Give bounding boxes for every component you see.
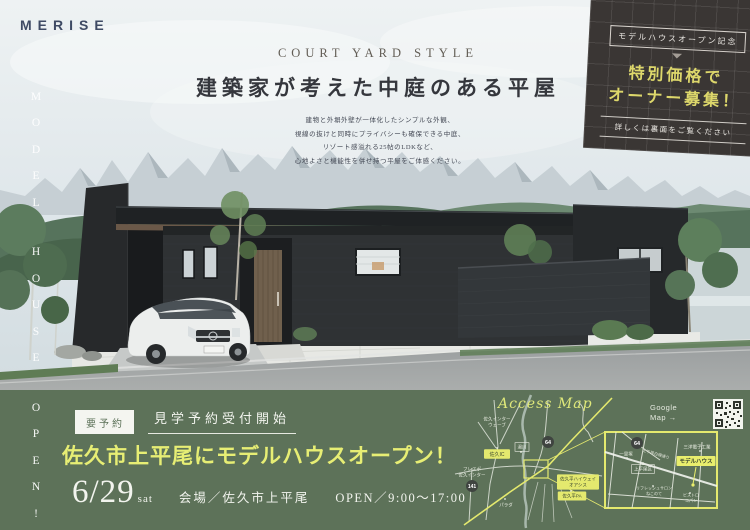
svg-text:佐久インター: 佐久インター: [484, 416, 511, 423]
svg-text:パラダ: パラダ: [499, 502, 513, 509]
map-label: ビストロコパン: [683, 492, 699, 504]
hero-eyebrow: COURT YARD STYLE: [178, 46, 578, 61]
map-label: 佐久平ハイウェイオアシス: [557, 474, 599, 489]
vertical-banner: MODELHOUSEOPEN!: [26, 92, 46, 520]
event-headline: 佐久市上平尾にモデルハウスオープン！: [62, 440, 462, 470]
map-label: 佐久インターウェーブ: [484, 416, 511, 429]
svg-text:一里塚: 一里塚: [619, 451, 633, 458]
event-venue: 会場／佐久市上平尾: [179, 487, 310, 506]
svg-text:上平尾区: 上平尾区: [634, 466, 652, 473]
svg-text:ねこのて: ねこのて: [646, 490, 662, 496]
map-roads: [455, 400, 602, 522]
event-date-row: 6/29 sat 会場／佐久市上平尾 OPEN／9:00〜17:00: [72, 474, 466, 511]
map-label: 一里塚: [619, 451, 633, 458]
map-label: 三洋電子工業: [684, 444, 711, 451]
reserve-row: 要予約 見学予約受付開始: [75, 408, 296, 434]
google-map-label: Google Map →: [650, 403, 677, 423]
reserve-note: 見学予約受付開始: [148, 408, 296, 434]
map-label: 64: [542, 436, 554, 448]
map-label: パラダ: [499, 502, 513, 509]
hero-title: 建築家が考えた中庭のある平屋: [168, 72, 588, 102]
map-label: 湯川: [515, 443, 529, 452]
event-day: sat: [138, 493, 153, 505]
svg-text:佐久平ハイウェイ: 佐久平ハイウェイ: [560, 476, 596, 483]
svg-text:佐久IC: 佐久IC: [489, 451, 504, 458]
map-label: 64: [631, 437, 643, 449]
google-map-line2: Map →: [650, 413, 677, 423]
svg-text:ウェーブ: ウェーブ: [488, 422, 506, 429]
brand-logo: MERISE: [20, 17, 110, 33]
map-label: 佐久IC: [484, 449, 510, 459]
event-date: 6/29: [72, 474, 135, 511]
access-map-title: Access Map: [498, 396, 593, 412]
svg-text:三洋電子工業: 三洋電子工業: [684, 444, 711, 451]
promo-box: モデルハウスオープン記念 特別価格で オーナー募集！ 詳しくは裏面をご覧ください: [583, 0, 750, 157]
svg-text:141: 141: [468, 484, 477, 490]
svg-text:64: 64: [545, 440, 552, 446]
reserve-badge: 要予約: [75, 410, 134, 434]
map-label: モデルハウス: [677, 456, 716, 466]
promo-note: 詳しくは裏面をご覧ください: [600, 116, 747, 145]
svg-text:湯川: 湯川: [518, 444, 527, 451]
google-map-line1: Google: [650, 403, 677, 413]
promo-badge: モデルハウスオープン記念: [610, 25, 746, 53]
hero-body: 建物と外塀外壁が一体化したシンプルな外観、視線の抜けと同時にプライバシーも確保で…: [230, 114, 530, 168]
svg-text:モデルハウス: モデルハウス: [679, 457, 713, 465]
svg-text:リフレッシュサロン: リフレッシュサロン: [636, 486, 672, 491]
access-map: 佐久インターウェーブ佐久IC湯川64141フレスポ佐久インター佐久平ハイウェイオ…: [450, 392, 750, 530]
map-label: 佐久平PA: [558, 491, 587, 500]
svg-text:ビストロ: ビストロ: [683, 492, 699, 498]
svg-text:フレスポ: フレスポ: [463, 466, 481, 472]
flyer-poster: MERISE COURT YARD STYLE 建築家が考えた中庭のある平屋 建…: [0, 0, 750, 530]
svg-text:64: 64: [634, 441, 641, 447]
caret-down-icon: [672, 53, 682, 59]
qr-code: [713, 399, 743, 429]
svg-text:コパン: コパン: [685, 498, 697, 503]
event-hours: OPEN／9:00〜17:00: [335, 487, 466, 506]
map-label: 141: [466, 480, 478, 492]
svg-text:佐久平PA: 佐久平PA: [562, 493, 581, 500]
